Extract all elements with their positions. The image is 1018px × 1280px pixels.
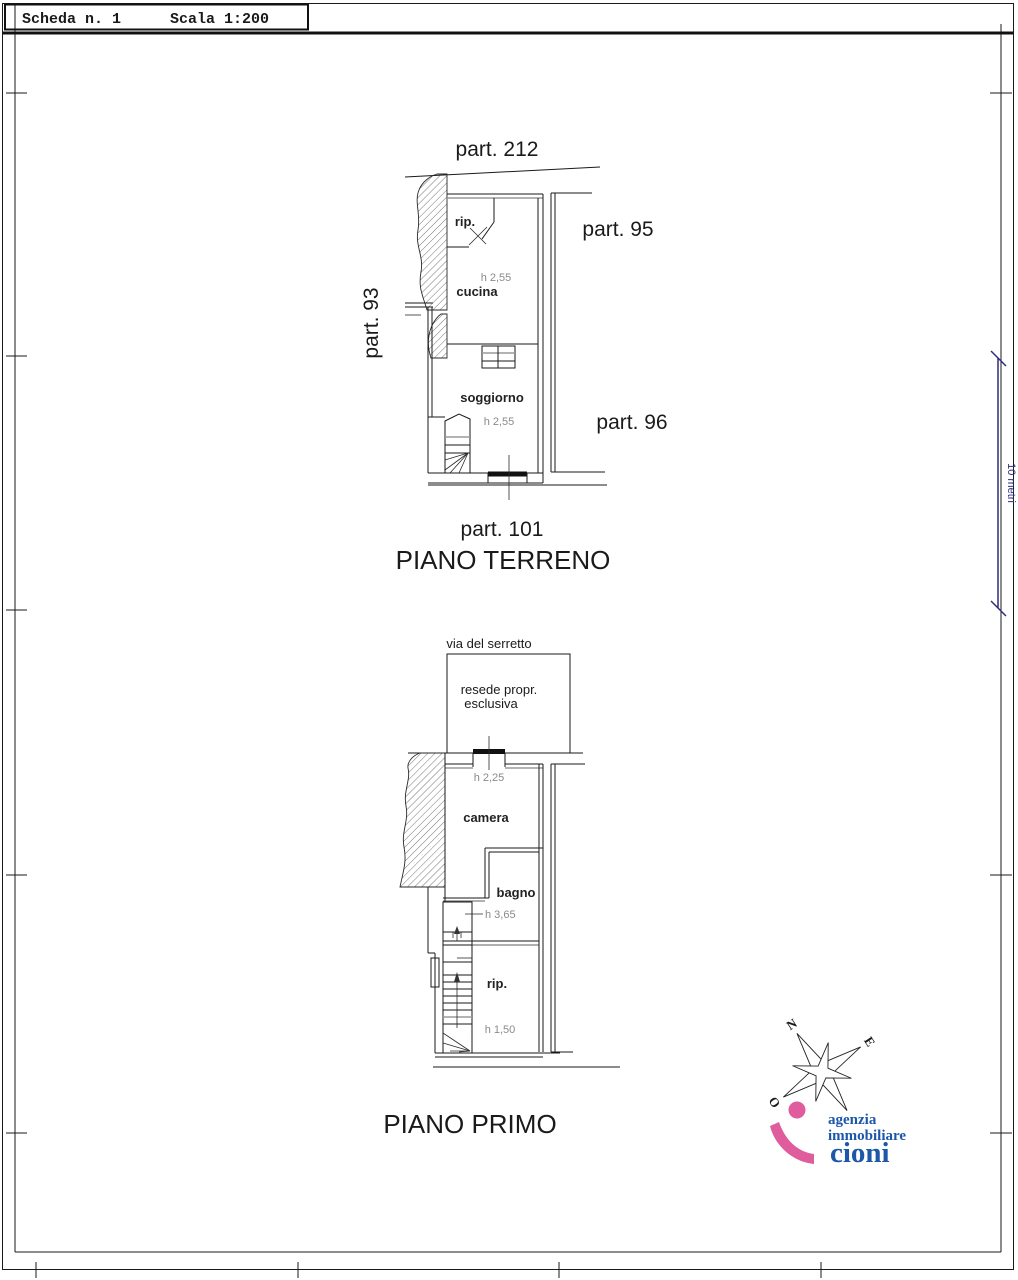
sheet-scale-label: Scala 1:200 [170, 11, 269, 28]
right-parcel-boundary-first [551, 764, 585, 1052]
room-label-soggiorno: soggiorno [460, 390, 524, 405]
rip-room-walls [443, 941, 539, 945]
hatched-wall [417, 174, 447, 310]
hatched-wall [400, 753, 445, 887]
logo-text-cioni: cioni [830, 1137, 890, 1169]
unit-walls [428, 194, 607, 500]
parcel-label-101: part. 101 [461, 518, 544, 541]
compass-east-label: E [861, 1034, 878, 1049]
internal-stair-top [447, 344, 538, 368]
room-label-camera: camera [463, 810, 509, 825]
height-label-cucina: h 2,55 [481, 272, 512, 284]
height-label-bagno: h 3,65 [485, 909, 516, 921]
courtyard-label-2: esclusiva [464, 696, 518, 711]
height-label-soggiorno: h 2,55 [484, 416, 515, 428]
staircase-first-floor [443, 926, 472, 1053]
first-floor-plan: via del serretto resede propr. esclusiva… [383, 636, 620, 1139]
parcel-label-96: part. 96 [596, 411, 667, 434]
entry-door [473, 736, 505, 770]
logo-person-icon [789, 1102, 806, 1119]
agency-logo: agenzia immobiliare cioni [770, 1102, 906, 1170]
ground-floor-title: PIANO TERRENO [396, 545, 611, 575]
room-label-rip-first: rip. [487, 976, 507, 991]
logo-swoosh-icon [770, 1122, 814, 1164]
room-label-cucina: cucina [456, 284, 498, 299]
parcel-label-212: part. 212 [456, 138, 539, 161]
room-label-rip: rip. [455, 214, 475, 229]
title-block: Scheda n. 1 Scala 1:200 [5, 5, 308, 30]
entrance-door [488, 472, 527, 477]
parcel-label-95: part. 95 [582, 218, 653, 241]
compass-north-label: N [784, 1015, 801, 1033]
closet [443, 902, 483, 938]
winder-staircase [445, 414, 470, 473]
sheet-number-label: Scheda n. 1 [22, 11, 121, 28]
logo-text-agenzia: agenzia [828, 1112, 877, 1128]
courtyard-label-1: resede propr. [461, 682, 538, 697]
hatched-wall [428, 314, 447, 358]
scale-bar-label: 10 metri [1005, 463, 1017, 503]
room-label-bagno: bagno [497, 885, 536, 900]
floor-plan-sheet: Scheda n. 1 Scala 1:200 [0, 0, 1018, 1280]
compass-west-label: O [765, 1094, 783, 1111]
parcel-label-93: part. 93 [360, 287, 383, 358]
height-label-rip: h 1,50 [485, 1024, 516, 1036]
height-label-entry: h 2,25 [474, 772, 505, 784]
first-floor-title: PIANO PRIMO [383, 1109, 556, 1139]
street-label: via del serretto [446, 636, 531, 651]
ground-floor-plan: part. 212 part. 95 part. 96 part. 93 par… [360, 138, 668, 575]
